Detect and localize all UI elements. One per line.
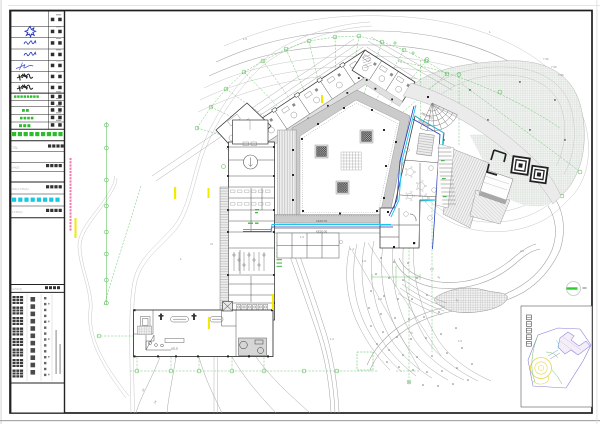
svg-text:7.90: 7.90 bbox=[558, 73, 564, 77]
svg-text:1.: 1. bbox=[489, 30, 492, 34]
svg-text:1.5: 1.5 bbox=[458, 339, 462, 343]
svg-text:KED0.50: KED0.50 bbox=[316, 219, 328, 223]
svg-text:7.30: 7.30 bbox=[543, 57, 549, 61]
svg-text:1.2: 1.2 bbox=[330, 337, 334, 341]
svg-text:A4(3): A4(3) bbox=[12, 166, 19, 170]
svg-text:A2%(2): A2%(2) bbox=[12, 287, 22, 291]
svg-text:TSL: TSL bbox=[12, 146, 18, 150]
svg-text:2.2: 2.2 bbox=[398, 59, 402, 63]
svg-text:1.8: 1.8 bbox=[362, 259, 366, 263]
svg-text:1735(A): 1735(A) bbox=[12, 210, 23, 214]
svg-text:4.0: 4.0 bbox=[520, 249, 524, 253]
svg-text:2.0: 2.0 bbox=[430, 267, 434, 271]
svg-text:1.5: 1.5 bbox=[300, 235, 304, 239]
svg-text:7.60: 7.60 bbox=[551, 65, 557, 69]
svg-text:1.4: 1.4 bbox=[350, 247, 354, 251]
svg-text:1.: 1. bbox=[180, 257, 183, 261]
svg-text:1.6: 1.6 bbox=[378, 297, 382, 301]
svg-text:J1: J1 bbox=[210, 242, 213, 246]
svg-text:1.5: 1.5 bbox=[243, 37, 247, 41]
svg-text:DW-1735(A): DW-1735(A) bbox=[12, 187, 29, 191]
svg-text:LELD: LELD bbox=[171, 347, 178, 351]
